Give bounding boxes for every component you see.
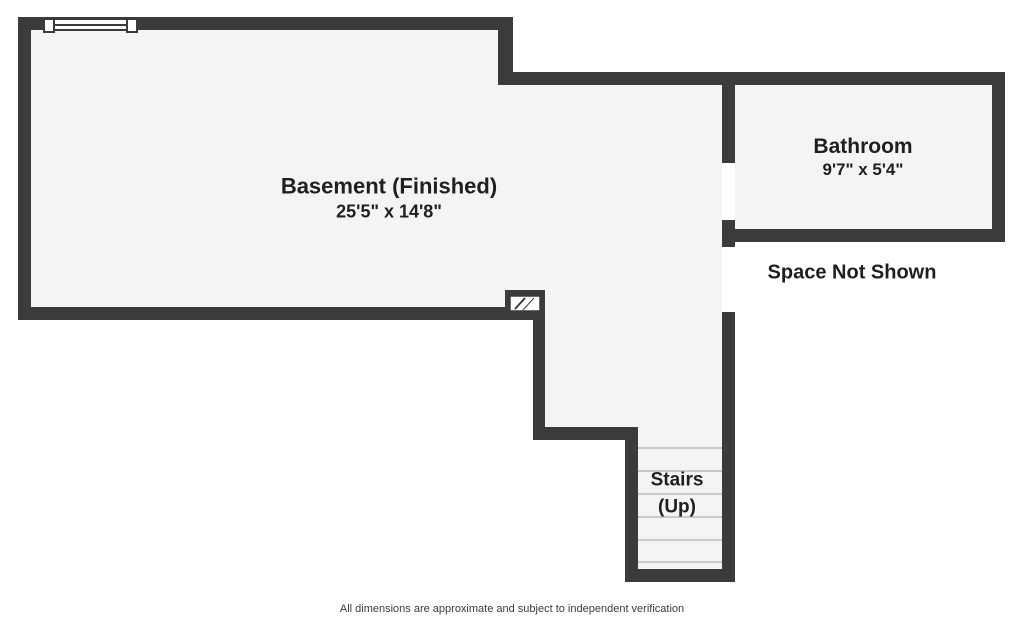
basement-floor-corridor-lower — [545, 308, 722, 428]
wall-bathroom-bottom — [722, 229, 1005, 242]
stair-tread — [638, 561, 722, 563]
wall-corridor-right-upper — [722, 85, 735, 163]
window-end-cap — [43, 18, 55, 33]
space-not-shown-label: Space Not Shown — [768, 262, 937, 285]
stairs-label-line2: (Up) — [651, 494, 704, 521]
wall-mid-vertical — [533, 307, 545, 440]
basement-room-dims: 25'5" x 14'8" — [281, 200, 497, 223]
wall-corridor-bottom — [533, 427, 638, 440]
stairs-label-line1: Stairs — [651, 467, 704, 494]
chimney-hatch-symbol — [509, 295, 541, 312]
wall-bottom-wide — [18, 307, 533, 320]
disclaimer-text: All dimensions are approximate and subje… — [340, 603, 684, 615]
basement-room-name: Basement (Finished) — [281, 173, 497, 201]
stairs-label: Stairs (Up) — [651, 467, 704, 520]
basement-floor-wide — [30, 30, 498, 308]
window-end-cap — [126, 18, 138, 33]
bathroom-room-dims: 9'7" x 5'4" — [813, 159, 912, 182]
bathroom-room-name: Bathroom — [813, 134, 912, 159]
wall-corridor-right-mid — [722, 220, 735, 247]
basement-floor-corridor-upper — [498, 85, 722, 308]
wall-left — [18, 17, 31, 320]
wall-corridor-right-lower — [722, 312, 735, 582]
stair-tread — [638, 447, 722, 449]
basement-label: Basement (Finished) 25'5" x 14'8" — [281, 173, 497, 224]
wall-stairwell-bottom — [625, 569, 735, 582]
wall-stairwell-left — [625, 427, 638, 582]
bathroom-label: Bathroom 9'7" x 5'4" — [813, 134, 912, 182]
stair-tread — [638, 539, 722, 541]
window-pane-line — [45, 24, 136, 26]
floor-plan: Basement (Finished) 25'5" x 14'8" Bathro… — [0, 0, 1024, 623]
wall-top-right-section — [498, 72, 1005, 85]
window-symbol — [43, 18, 138, 31]
wall-bathroom-right — [992, 72, 1005, 242]
